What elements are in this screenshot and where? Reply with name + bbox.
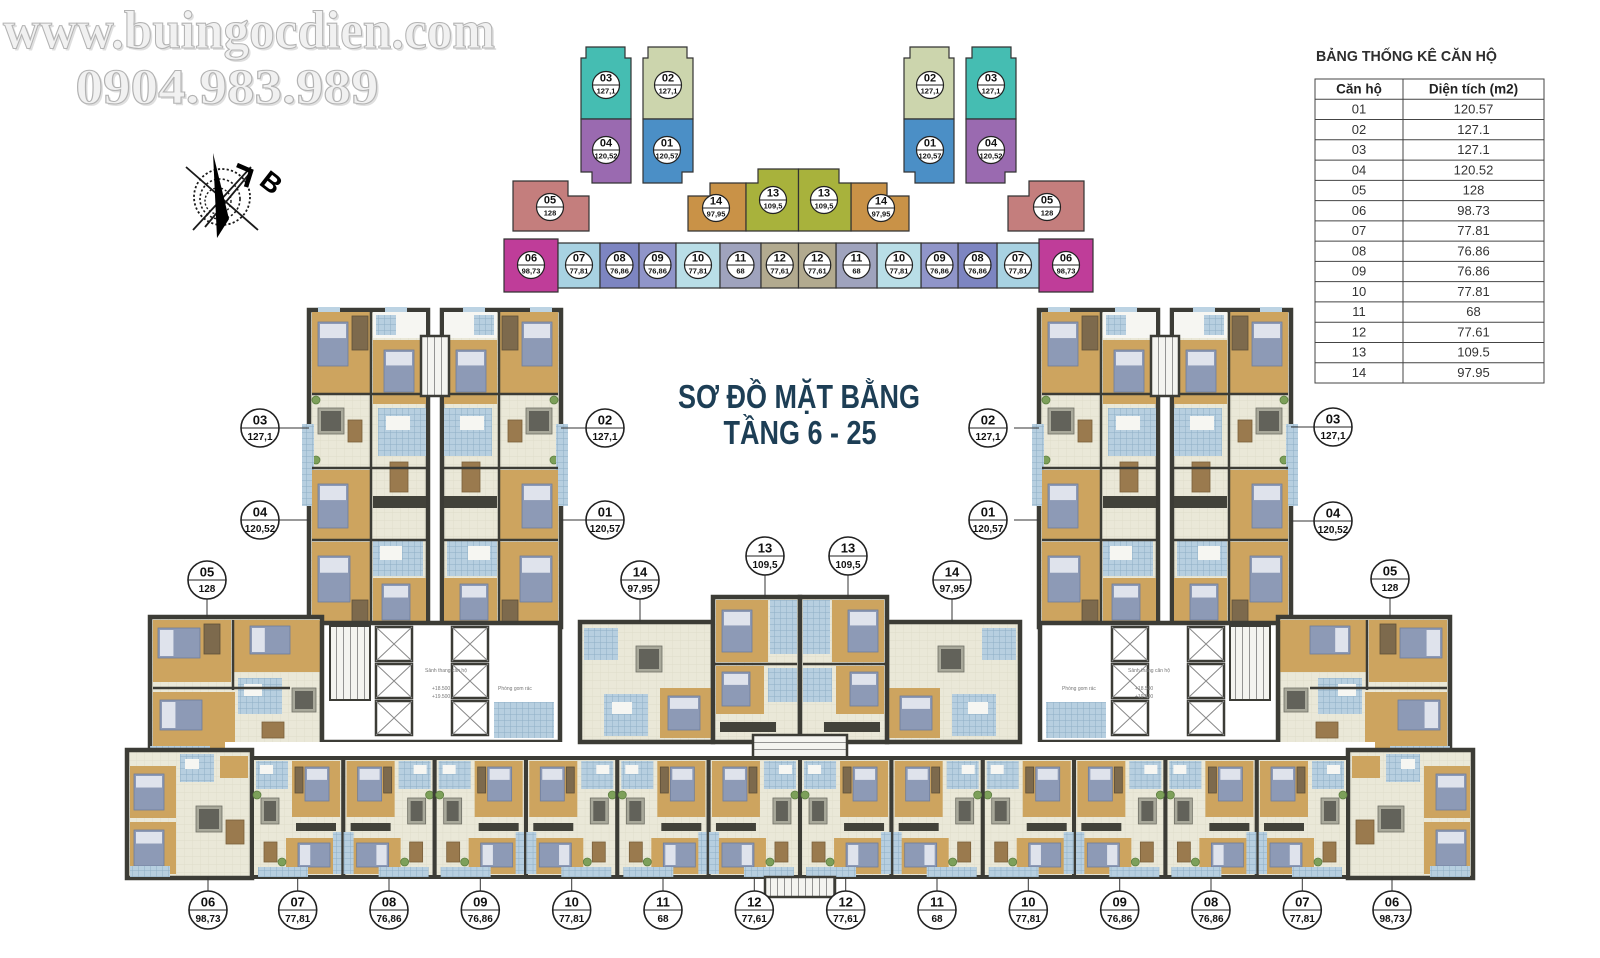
svg-text:07: 07 xyxy=(1295,895,1309,910)
svg-text:120,52: 120,52 xyxy=(245,524,276,535)
svg-text:77,61: 77,61 xyxy=(742,914,767,925)
svg-text:05: 05 xyxy=(1383,564,1397,579)
svg-text:01: 01 xyxy=(1352,102,1366,117)
svg-text:120,57: 120,57 xyxy=(919,151,942,160)
svg-text:13: 13 xyxy=(758,541,772,556)
svg-text:13: 13 xyxy=(767,188,779,200)
svg-text:97,95: 97,95 xyxy=(707,209,726,218)
svg-text:128: 128 xyxy=(1041,208,1054,217)
svg-text:+18.500: +18.500 xyxy=(432,686,450,692)
svg-text:127,1: 127,1 xyxy=(597,86,616,95)
svg-text:77,81: 77,81 xyxy=(1290,914,1315,925)
svg-text:128: 128 xyxy=(1382,583,1399,594)
svg-text:77,61: 77,61 xyxy=(808,266,827,275)
svg-text:127,1: 127,1 xyxy=(247,432,272,443)
svg-text:SƠ ĐỒ MẶT BẰNG: SƠ ĐỒ MẶT BẰNG xyxy=(678,378,920,415)
svg-text:120,52: 120,52 xyxy=(980,151,1003,160)
svg-text:03: 03 xyxy=(985,73,997,85)
svg-text:76,86: 76,86 xyxy=(610,266,629,275)
svg-text:07: 07 xyxy=(1352,223,1366,238)
svg-text:06: 06 xyxy=(201,895,215,910)
svg-text:120,52: 120,52 xyxy=(595,151,618,160)
svg-text:127,1: 127,1 xyxy=(982,86,1001,95)
svg-text:10: 10 xyxy=(1021,895,1035,910)
svg-text:14: 14 xyxy=(710,196,723,208)
svg-text:07: 07 xyxy=(290,895,304,910)
svg-text:76,86: 76,86 xyxy=(468,914,493,925)
svg-text:77.81: 77.81 xyxy=(1457,284,1490,299)
svg-text:+19.500: +19.500 xyxy=(1135,694,1153,700)
svg-text:127,1: 127,1 xyxy=(921,86,940,95)
svg-text:02: 02 xyxy=(981,413,995,428)
svg-text:76,86: 76,86 xyxy=(648,266,667,275)
svg-text:04: 04 xyxy=(1326,506,1341,521)
svg-text:76,86: 76,86 xyxy=(1107,914,1132,925)
svg-text:Phòng gom rác: Phòng gom rác xyxy=(498,686,532,692)
svg-text:06: 06 xyxy=(525,253,537,265)
svg-text:08: 08 xyxy=(1352,243,1366,258)
svg-text:04: 04 xyxy=(600,138,613,150)
svg-text:98,73: 98,73 xyxy=(195,914,220,925)
svg-text:11: 11 xyxy=(930,895,944,910)
svg-text:98.73: 98.73 xyxy=(1457,203,1490,218)
svg-text:09: 09 xyxy=(473,895,487,910)
svg-text:10: 10 xyxy=(1352,284,1366,299)
svg-text:76,86: 76,86 xyxy=(1198,914,1223,925)
svg-text:120.52: 120.52 xyxy=(1454,162,1494,177)
svg-text:11: 11 xyxy=(656,895,670,910)
svg-text:13: 13 xyxy=(841,541,855,556)
svg-text:127,1: 127,1 xyxy=(1320,431,1345,442)
svg-text:10: 10 xyxy=(692,253,704,265)
svg-text:05: 05 xyxy=(1041,195,1053,207)
svg-text:68: 68 xyxy=(852,266,860,275)
svg-text:98,73: 98,73 xyxy=(1379,914,1404,925)
svg-text:Căn hộ: Căn hộ xyxy=(1336,81,1382,96)
svg-text:76,86: 76,86 xyxy=(930,266,949,275)
svg-text:109,5: 109,5 xyxy=(835,560,860,571)
svg-text:120,52: 120,52 xyxy=(1318,525,1349,536)
svg-text:120.57: 120.57 xyxy=(1454,102,1494,117)
svg-text:+18.500: +18.500 xyxy=(1135,686,1153,692)
svg-text:03: 03 xyxy=(600,73,612,85)
svg-text:77,61: 77,61 xyxy=(833,914,858,925)
svg-text:14: 14 xyxy=(945,565,960,580)
svg-text:77,81: 77,81 xyxy=(1009,266,1028,275)
svg-text:12: 12 xyxy=(838,895,852,910)
svg-text:09: 09 xyxy=(1112,895,1126,910)
svg-text:68: 68 xyxy=(931,914,943,925)
svg-text:Sảnh thang căn hộ: Sảnh thang căn hộ xyxy=(425,668,467,674)
svg-text:03: 03 xyxy=(1352,142,1366,157)
svg-text:128: 128 xyxy=(544,208,557,217)
svg-text:09: 09 xyxy=(933,253,945,265)
svg-text:03: 03 xyxy=(253,413,267,428)
svg-text:77,81: 77,81 xyxy=(689,266,708,275)
svg-text:11: 11 xyxy=(851,253,863,265)
svg-text:0904.983.989: 0904.983.989 xyxy=(76,58,379,114)
svg-text:14: 14 xyxy=(633,565,648,580)
svg-text:10: 10 xyxy=(564,895,578,910)
svg-text:109,5: 109,5 xyxy=(752,560,777,571)
svg-text:08: 08 xyxy=(1204,895,1218,910)
svg-text:01: 01 xyxy=(661,138,673,150)
svg-text:12: 12 xyxy=(774,253,786,265)
svg-text:03: 03 xyxy=(1326,412,1340,427)
svg-text:109.5: 109.5 xyxy=(1457,345,1490,360)
svg-text:76,86: 76,86 xyxy=(968,266,987,275)
svg-text:02: 02 xyxy=(662,73,674,85)
svg-text:128: 128 xyxy=(1463,183,1485,198)
svg-text:07: 07 xyxy=(1012,253,1024,265)
svg-text:12: 12 xyxy=(811,253,823,265)
svg-text:+19.500: +19.500 xyxy=(432,694,450,700)
svg-text:08: 08 xyxy=(971,253,983,265)
svg-text:06: 06 xyxy=(1385,895,1399,910)
svg-text:127,1: 127,1 xyxy=(592,432,617,443)
svg-text:13: 13 xyxy=(818,188,830,200)
svg-text:09: 09 xyxy=(1352,264,1366,279)
svg-text:68: 68 xyxy=(1466,304,1480,319)
svg-text:BẢNG THỐNG KÊ CĂN HỘ: BẢNG THỐNG KÊ CĂN HỘ xyxy=(1316,47,1497,65)
svg-text:11: 11 xyxy=(1352,304,1366,319)
svg-text:77,61: 77,61 xyxy=(770,266,789,275)
svg-text:127.1: 127.1 xyxy=(1457,142,1490,157)
svg-text:77,81: 77,81 xyxy=(890,266,909,275)
svg-text:01: 01 xyxy=(924,138,936,150)
svg-text:02: 02 xyxy=(598,413,612,428)
svg-text:05: 05 xyxy=(1352,183,1366,198)
svg-text:128: 128 xyxy=(199,584,216,595)
svg-text:12: 12 xyxy=(747,895,761,910)
svg-text:68: 68 xyxy=(736,266,744,275)
svg-text:01: 01 xyxy=(981,505,995,520)
svg-text:77.81: 77.81 xyxy=(1457,223,1490,238)
svg-text:76.86: 76.86 xyxy=(1457,264,1490,279)
svg-text:97.95: 97.95 xyxy=(1457,365,1490,380)
svg-text:10: 10 xyxy=(893,253,905,265)
svg-text:76,86: 76,86 xyxy=(376,914,401,925)
svg-text:14: 14 xyxy=(875,196,888,208)
svg-text:04: 04 xyxy=(985,138,998,150)
svg-text:98,73: 98,73 xyxy=(1057,266,1076,275)
svg-text:97,95: 97,95 xyxy=(872,209,891,218)
svg-text:76.86: 76.86 xyxy=(1457,243,1490,258)
svg-text:Diện tích (m2): Diện tích (m2) xyxy=(1429,81,1518,96)
svg-text:68: 68 xyxy=(657,914,669,925)
svg-text:www.buingocdien.com: www.buingocdien.com xyxy=(3,0,495,60)
svg-text:07: 07 xyxy=(573,253,585,265)
svg-text:Sảnh thang căn hộ: Sảnh thang căn hộ xyxy=(1128,668,1170,674)
svg-text:02: 02 xyxy=(924,73,936,85)
svg-text:04: 04 xyxy=(253,505,268,520)
svg-text:02: 02 xyxy=(1352,122,1366,137)
svg-text:01: 01 xyxy=(598,505,612,520)
svg-text:109,5: 109,5 xyxy=(815,201,834,210)
svg-text:06: 06 xyxy=(1060,253,1072,265)
svg-text:97,95: 97,95 xyxy=(627,584,652,595)
svg-text:127,1: 127,1 xyxy=(975,432,1000,443)
svg-text:09: 09 xyxy=(651,253,663,265)
svg-text:120,57: 120,57 xyxy=(590,524,621,535)
svg-text:98,73: 98,73 xyxy=(522,266,541,275)
svg-text:TẦNG 6 - 25: TẦNG 6 - 25 xyxy=(724,414,877,451)
svg-text:05: 05 xyxy=(200,565,214,580)
svg-text:Phòng gom rác: Phòng gom rác xyxy=(1062,686,1096,692)
svg-text:06: 06 xyxy=(1352,203,1366,218)
svg-text:08: 08 xyxy=(382,895,396,910)
svg-text:77,81: 77,81 xyxy=(570,266,589,275)
svg-text:12: 12 xyxy=(1352,324,1366,339)
svg-text:127,1: 127,1 xyxy=(659,86,678,95)
svg-text:120,57: 120,57 xyxy=(973,524,1004,535)
svg-text:77,81: 77,81 xyxy=(559,914,584,925)
svg-text:04: 04 xyxy=(1352,162,1366,177)
svg-text:05: 05 xyxy=(544,195,556,207)
svg-text:77,81: 77,81 xyxy=(285,914,310,925)
svg-text:120,57: 120,57 xyxy=(656,151,679,160)
svg-text:127.1: 127.1 xyxy=(1457,122,1490,137)
svg-text:77.61: 77.61 xyxy=(1457,324,1490,339)
svg-text:08: 08 xyxy=(613,253,625,265)
svg-text:13: 13 xyxy=(1352,345,1366,360)
svg-text:109,5: 109,5 xyxy=(764,201,783,210)
svg-text:11: 11 xyxy=(735,253,747,265)
svg-text:77,81: 77,81 xyxy=(1016,914,1041,925)
svg-text:14: 14 xyxy=(1352,365,1366,380)
svg-text:97,95: 97,95 xyxy=(939,584,964,595)
